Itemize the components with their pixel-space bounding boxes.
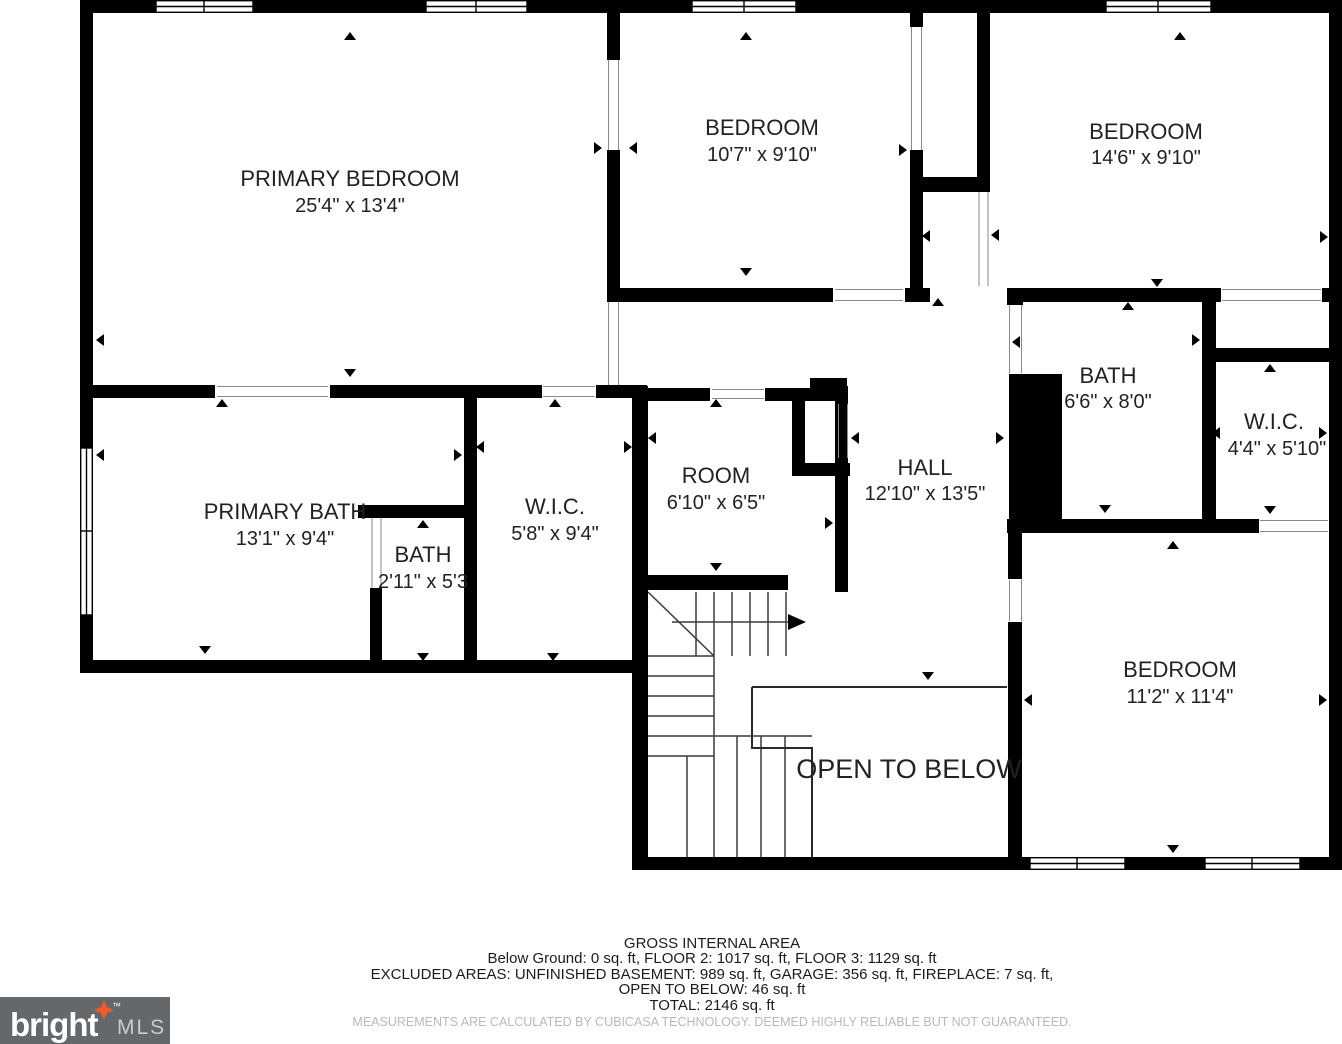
window-left (81, 448, 93, 615)
brightmls-logo: bright ™ MLS (0, 997, 170, 1044)
stair-direction-arrowhead (788, 614, 806, 630)
room-label-bedroom-right-dims: 14'6" x 9'10" (1091, 147, 1201, 169)
window-bottom-1 (1030, 858, 1125, 870)
room-label-bath-small-dims: 2'11" x 5'3 (378, 571, 468, 593)
room-label-wic-right-name: W.I.C. (1244, 409, 1304, 434)
room-label-bedroom-top-dims: 10'7" x 9'10" (707, 144, 817, 166)
footer-area-summary: GROSS INTERNAL AREA Below Ground: 0 sq. … (352, 935, 1071, 1029)
footer-total-line: TOTAL: 2146 sq. ft (649, 997, 775, 1014)
room-label-primary-bedroom-dims: 25'4" x 13'4" (295, 195, 405, 217)
room-label-bedroom-right-name: BEDROOM (1089, 119, 1203, 144)
room-label-bedroom-bottom-name: BEDROOM (1123, 657, 1237, 682)
window-top-1 (156, 1, 253, 13)
window-top-3 (692, 1, 796, 13)
window-top-2 (426, 1, 527, 13)
footer-disclaimer: MEASUREMENTS ARE CALCULATED BY CUBICASA … (352, 1015, 1071, 1029)
room-label-primary-bedroom-name: PRIMARY BEDROOM (240, 166, 459, 191)
window-bottom-2 (1205, 858, 1300, 870)
window-top-4 (1106, 1, 1211, 13)
room-label-wic-left-name: W.I.C. (525, 494, 585, 519)
room-label-bath-upper-name: BATH (1079, 363, 1136, 388)
room-label-hall-name: HALL (897, 455, 952, 480)
floor-plan-canvas: PRIMARY BEDROOM 25'4" x 13'4" BEDROOM 10… (0, 0, 1342, 1044)
open-to-below-label: OPEN TO BELOW (796, 754, 1022, 784)
room-labels: PRIMARY BEDROOM 25'4" x 13'4" BEDROOM 10… (204, 115, 1327, 784)
staircase (648, 592, 812, 857)
logo-suffix-text: MLS (117, 1016, 166, 1039)
room-label-bath-upper-dims: 6'6" x 8'0" (1064, 391, 1151, 413)
room-label-wic-right-dims: 4'4" x 5'10" (1228, 438, 1327, 460)
room-label-primary-bath-name: PRIMARY BATH (204, 499, 367, 524)
room-label-wic-left-dims: 5'8" x 9'4" (511, 523, 598, 545)
footer-floors-line: Below Ground: 0 sq. ft, FLOOR 2: 1017 sq… (487, 950, 937, 967)
footer-open-below-line: OPEN TO BELOW: 46 sq. ft (619, 981, 807, 998)
logo-tm-mark: ™ (112, 1001, 121, 1011)
room-label-room-name: ROOM (682, 463, 750, 488)
room-label-bedroom-bottom-dims: 11'2" x 11'4" (1127, 686, 1234, 708)
room-label-bedroom-top-name: BEDROOM (705, 115, 819, 140)
room-label-room-dims: 6'10" x 6'5" (667, 492, 766, 514)
logo-brand-text: bright (10, 1006, 98, 1043)
room-label-bath-small-name: BATH (394, 542, 451, 567)
floor-plan-page: PRIMARY BEDROOM 25'4" x 13'4" BEDROOM 10… (0, 0, 1342, 1044)
room-label-hall-dims: 12'10" x 13'5" (865, 483, 986, 505)
room-label-primary-bath-dims: 13'1" x 9'4" (236, 528, 335, 550)
